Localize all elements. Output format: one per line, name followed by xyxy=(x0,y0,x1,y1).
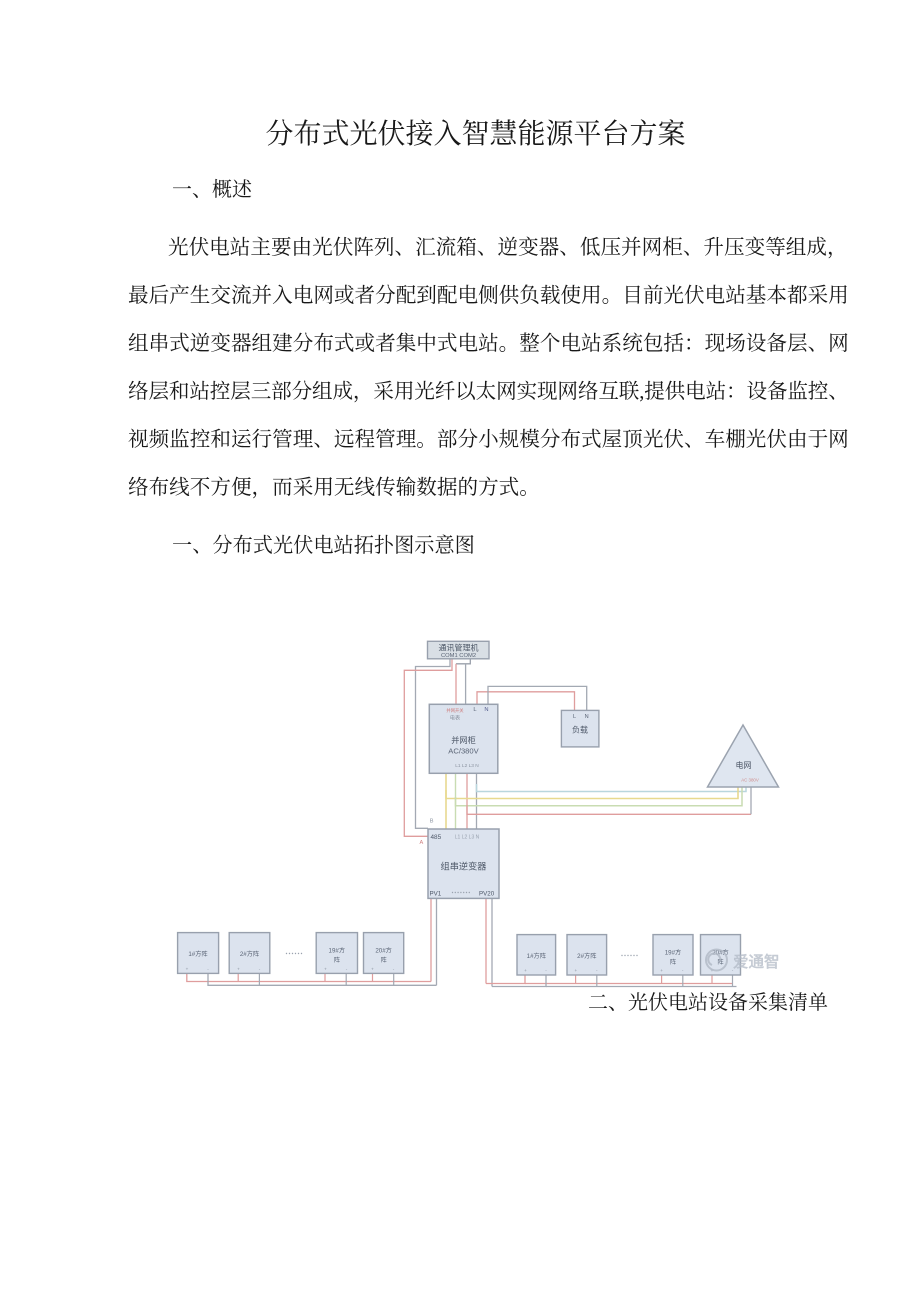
svg-text:2#方阵: 2#方阵 xyxy=(577,952,596,960)
svg-text:+: + xyxy=(237,967,240,972)
svg-text:L1 L2 L3 N: L1 L2 L3 N xyxy=(455,835,480,841)
svg-text:PV20: PV20 xyxy=(479,891,495,898)
svg-text:AC 380V: AC 380V xyxy=(741,778,759,783)
svg-text:阵: 阵 xyxy=(381,956,387,964)
svg-text:A: A xyxy=(420,840,424,846)
svg-text:并网开关: 并网开关 xyxy=(446,707,464,714)
svg-text:组串逆变器: 组串逆变器 xyxy=(441,861,487,872)
svg-text:+: + xyxy=(371,967,374,972)
svg-text:PV1: PV1 xyxy=(430,891,442,898)
svg-text:阵: 阵 xyxy=(670,958,676,966)
svg-text:电网: 电网 xyxy=(736,760,752,770)
svg-text:L1 L2 L3 N: L1 L2 L3 N xyxy=(455,763,479,769)
svg-text:电表: 电表 xyxy=(450,714,461,722)
svg-text:阵: 阵 xyxy=(334,956,340,964)
svg-text:19#方: 19#方 xyxy=(329,947,346,955)
svg-text:1#方阵: 1#方阵 xyxy=(527,952,546,960)
svg-text:20#方: 20#方 xyxy=(375,947,392,955)
svg-text:N: N xyxy=(585,714,589,720)
svg-text:485: 485 xyxy=(431,834,442,841)
svg-text:通讯管理机: 通讯管理机 xyxy=(439,642,479,652)
svg-text:+: + xyxy=(524,968,527,973)
svg-text:19#方: 19#方 xyxy=(665,949,682,957)
svg-text:1#方阵: 1#方阵 xyxy=(188,950,207,958)
svg-text:爱通智: 爱通智 xyxy=(733,952,780,971)
svg-text:+: + xyxy=(324,967,327,972)
svg-text:2#方阵: 2#方阵 xyxy=(240,950,259,958)
svg-text:AC/380V: AC/380V xyxy=(448,747,479,756)
svg-text:L: L xyxy=(573,714,576,720)
svg-text:负载: 负载 xyxy=(572,725,588,735)
svg-text:+: + xyxy=(574,968,577,973)
svg-text:并网柜: 并网柜 xyxy=(451,735,476,745)
svg-text:B: B xyxy=(430,819,434,825)
svg-text:COM1 COM2: COM1 COM2 xyxy=(441,653,476,659)
svg-text:N: N xyxy=(484,707,488,713)
svg-text:+: + xyxy=(660,968,663,973)
svg-text:+: + xyxy=(186,967,189,972)
